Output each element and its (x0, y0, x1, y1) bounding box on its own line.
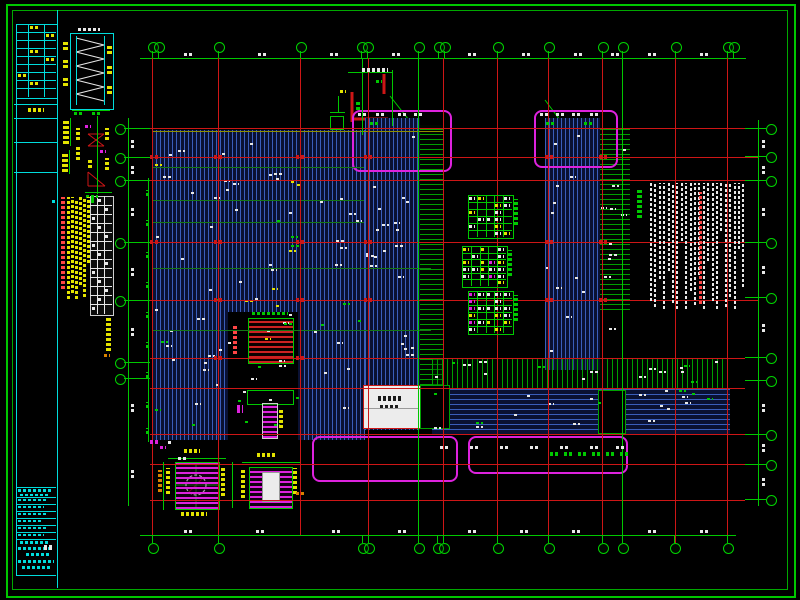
text-smear (546, 122, 556, 125)
text-smear (279, 408, 283, 428)
notes-text-column (703, 183, 705, 309)
text-smear (178, 457, 186, 460)
text-smear (160, 446, 166, 449)
text-smear (637, 188, 642, 218)
annotation-smear (269, 174, 273, 176)
schedule-cell-text (498, 255, 504, 258)
annotation-smear (245, 421, 249, 423)
schedule-cell-text (478, 293, 484, 296)
grid-line-h (150, 464, 745, 465)
text-smear (762, 324, 765, 332)
annotation-smear (682, 396, 688, 398)
grid-line-h (14, 142, 57, 143)
text-smear (522, 53, 532, 56)
text-smear (470, 446, 478, 449)
axis-stem (124, 128, 151, 129)
grid-line-h (150, 300, 758, 301)
annotation-smear (659, 371, 666, 373)
text-smear (572, 113, 580, 116)
annotation-smear (681, 371, 684, 373)
axis-stem (602, 51, 603, 59)
axis-bubble (766, 293, 777, 304)
grid-line-h (150, 388, 745, 389)
text-smear (71, 197, 74, 293)
grid-line-v (152, 58, 153, 543)
annotation-smear (219, 349, 223, 351)
notes-text-column (729, 183, 731, 297)
text-smear (168, 441, 173, 444)
axis-stem (152, 51, 153, 59)
axis-stem (124, 242, 151, 243)
plan-region (262, 472, 280, 502)
axis-bubble (154, 42, 165, 53)
annotation-smear (374, 256, 378, 258)
axis-stem (497, 535, 498, 543)
axis-bubble (414, 543, 425, 554)
text-smear (545, 298, 553, 302)
axis-bubble (148, 543, 159, 554)
axis-stem (745, 156, 766, 157)
axis-stem (368, 535, 369, 543)
axis-stem (745, 380, 766, 381)
grid-line-h (140, 535, 736, 536)
grid-line-h (90, 232, 112, 233)
annotation-smear (228, 342, 232, 344)
grid-line-h (16, 511, 56, 512)
annotation-smear (404, 348, 409, 350)
text-smear (221, 466, 225, 496)
notes-text-column (694, 183, 696, 305)
axis-stem (745, 464, 766, 465)
text-smear (74, 112, 84, 115)
annotation-smear (692, 393, 696, 395)
grid-line-h (150, 157, 758, 158)
axis-bubble (598, 543, 609, 554)
annotation-smear (258, 366, 262, 368)
text-smear (100, 150, 106, 153)
annotation-smear (452, 362, 458, 364)
annotation-smear (684, 365, 690, 367)
axis-stem (437, 535, 438, 543)
axis-bubble (439, 543, 450, 554)
notes-text-column (663, 183, 665, 309)
schedule-cell-text (469, 314, 475, 317)
text-smear (63, 120, 69, 144)
text-smear (105, 128, 109, 140)
schedule-grid-h (468, 326, 512, 327)
grid-line-h (16, 72, 56, 73)
grid-line-h (16, 575, 56, 576)
text-smear (61, 197, 65, 289)
annotation-smear (181, 258, 186, 260)
text-smear (378, 396, 402, 401)
notes-text-column (685, 183, 687, 309)
axis-bubble (440, 42, 451, 53)
text-smear (18, 520, 42, 522)
text-smear (414, 113, 422, 116)
text-smear (296, 298, 304, 302)
annotation-smear (680, 367, 684, 369)
grid-line-v (163, 462, 164, 510)
annotation-smear (272, 288, 278, 290)
annotation-smear (243, 391, 246, 393)
text-smear (584, 122, 594, 125)
annotation-smear (161, 341, 168, 343)
axis-stem (548, 535, 549, 543)
grid-line-v (300, 58, 301, 535)
annotation-smear (204, 362, 209, 364)
text-smear (340, 90, 346, 93)
annotation-smear (556, 287, 562, 289)
axis-stem (124, 180, 151, 181)
grid-line-h (90, 214, 112, 215)
grid-line-v (104, 36, 105, 105)
axis-bubble (729, 42, 740, 53)
annotation-smear (476, 426, 484, 428)
annotation-smear (679, 390, 686, 392)
text-smear (184, 53, 194, 56)
annotation-smear (210, 226, 213, 228)
plan-region (534, 110, 618, 168)
annotation-smear (274, 173, 282, 175)
schedule-grid-h (468, 305, 512, 306)
schedule-cell-text (487, 293, 493, 296)
grid-line-v (28, 24, 29, 97)
grid-line-h (16, 48, 56, 49)
grid-line-h (16, 32, 56, 33)
text-smear (599, 298, 607, 302)
annotation-smear (582, 291, 585, 293)
schedule-cell-text (463, 275, 469, 278)
annotation-smear (575, 277, 580, 279)
axis-stem (218, 535, 219, 543)
grid-line-h (90, 205, 112, 206)
annotation-smear (226, 189, 232, 191)
annotation-smear (155, 409, 161, 411)
text-smear (20, 541, 50, 544)
grid-line-h (90, 223, 112, 224)
schedule-cell-text (504, 321, 510, 324)
grid-line-h (90, 268, 112, 269)
annotation-smear (349, 213, 356, 215)
axis-bubble (493, 543, 504, 554)
grid-line-v (128, 118, 129, 506)
schedule-cell-text (495, 328, 501, 331)
text-smear (520, 530, 530, 533)
text-smear (78, 28, 100, 31)
annotation-smear (609, 328, 616, 330)
grid-line-v (232, 462, 233, 508)
annotation-smear (378, 208, 382, 210)
text-smear (256, 530, 266, 533)
grid-line-v (758, 120, 759, 506)
axis-stem (622, 535, 623, 543)
text-smear (233, 324, 237, 354)
text-smear (762, 404, 765, 412)
text-smear (18, 489, 52, 492)
notes-text-column (716, 183, 718, 309)
axis-stem (745, 180, 766, 181)
schedule-cell-text (504, 293, 510, 296)
annotation-smear (172, 359, 175, 361)
text-smear (648, 530, 658, 533)
notes-text-column (681, 183, 683, 241)
text-smear (258, 53, 268, 56)
schedule-cell-text (495, 218, 501, 221)
annotation-smear (383, 250, 386, 252)
text-smear (700, 530, 710, 533)
annotation-smear (660, 405, 665, 407)
text-smear (18, 506, 44, 508)
text-smear (18, 534, 44, 536)
text-smear (166, 468, 170, 494)
cad-sheet (0, 0, 800, 600)
schedule-cell-text (463, 268, 469, 271)
text-smear (146, 372, 149, 378)
text-smear (67, 197, 70, 299)
axis-bubble (766, 495, 777, 506)
text-smear (370, 122, 380, 125)
text-smear (181, 512, 207, 516)
text-smear (214, 240, 222, 244)
annotation-smear (251, 378, 258, 380)
text-smear (590, 113, 598, 116)
annotation-smear (434, 427, 441, 429)
annotation-smear (276, 305, 281, 307)
text-smear (131, 208, 134, 216)
text-smear (83, 199, 86, 297)
text-smear (146, 252, 149, 258)
annotation-smear (279, 360, 285, 362)
annotation-smear (550, 350, 555, 352)
axis-stem (158, 51, 159, 59)
schedule-grid-h (462, 253, 506, 254)
text-smear (648, 53, 658, 56)
annotation-smear (238, 400, 244, 402)
axis-stem (727, 51, 728, 59)
axis-bubble (115, 238, 126, 249)
annotation-smear (667, 408, 670, 410)
grid-line-h (16, 80, 56, 81)
annotation-smear (291, 245, 298, 247)
text-smear (76, 146, 80, 160)
axis-stem (745, 499, 766, 500)
text-smear (380, 405, 398, 408)
annotation-smear (337, 342, 343, 344)
annotation-smear (609, 254, 617, 256)
axis-bubble (544, 543, 555, 554)
grid-line-h (16, 539, 56, 540)
axis-stem (124, 157, 151, 158)
text-smear (75, 199, 78, 299)
text-smear (398, 530, 406, 533)
axis-bubble (296, 42, 307, 53)
text-smear (376, 80, 382, 83)
schedule-grid-h (468, 298, 512, 299)
annotation-smear (289, 250, 297, 252)
plan-region (432, 358, 730, 388)
schedule-cell-text (489, 261, 495, 264)
text-smear (556, 113, 564, 116)
annotation-smear (398, 276, 404, 278)
schedule-grid-h (468, 216, 512, 217)
text-smear (146, 342, 149, 348)
grid-line-h (153, 167, 364, 168)
schedule-cell-text (495, 300, 501, 303)
schedule-cell-text (469, 321, 475, 324)
annotation-smear (395, 245, 403, 247)
text-smear (237, 405, 243, 413)
grid-line-h (153, 222, 364, 223)
axis-stem (124, 378, 151, 379)
text-smear (762, 444, 765, 452)
text-smear (18, 513, 48, 515)
annotation-smear (192, 424, 196, 426)
annotation-smear (665, 390, 670, 392)
axis-stem (124, 362, 151, 363)
annotation-smear (612, 185, 619, 187)
text-smear (92, 244, 96, 247)
text-smear (540, 113, 548, 116)
schedule-label (514, 199, 518, 225)
text-smear (184, 530, 194, 533)
annotation-smear (195, 403, 200, 405)
schedule-label (508, 250, 512, 276)
axis-stem (727, 535, 728, 543)
grid-line-v (70, 118, 71, 146)
schedule-cell-text (478, 218, 484, 221)
schedule-cell-text (463, 248, 469, 251)
text-smear (146, 402, 149, 408)
schedule-cell-text (504, 307, 510, 310)
annotation-smear (340, 247, 347, 249)
axis-bubble (670, 543, 681, 554)
annotation-smear (412, 136, 416, 138)
annotation-smear (554, 143, 559, 145)
axis-bubble (766, 124, 777, 135)
annotation-smear (314, 331, 320, 333)
notes-text-column (712, 183, 714, 301)
annotation-smear (639, 394, 646, 396)
notes-text-column (668, 183, 670, 271)
axis-stem (443, 535, 444, 543)
text-smear (98, 280, 102, 283)
schedule-grid-h (468, 209, 512, 210)
annotation-smear (163, 176, 170, 178)
text-smear (468, 530, 478, 533)
schedule-cell-text (478, 197, 484, 200)
text-smear (762, 266, 765, 274)
grid-line-v (44, 24, 45, 97)
text-smear (332, 530, 342, 533)
text-smear (106, 317, 111, 351)
axis-bubble (115, 374, 126, 385)
text-smear (85, 125, 91, 128)
annotation-smear (235, 209, 238, 211)
plan-region (175, 462, 220, 510)
annotation-smear (169, 154, 175, 156)
text-smear (560, 446, 568, 449)
schedule-cell-text (504, 314, 510, 317)
text-smear (241, 470, 245, 498)
notes-text-column (672, 183, 674, 303)
axis-stem (300, 51, 301, 59)
text-smear (62, 152, 68, 172)
axis-bubble (214, 543, 225, 554)
axis-bubble (598, 42, 609, 53)
schedule-cell-text (469, 197, 475, 200)
axis-stem (438, 51, 439, 59)
schedule-cell-text (481, 261, 487, 264)
grid-line-h (90, 250, 112, 251)
text-smear (358, 113, 366, 116)
schedule-cell-text (504, 232, 510, 235)
text-smear (699, 192, 702, 304)
axis-bubble (544, 42, 555, 53)
grid-line-v (443, 58, 444, 543)
text-smear (131, 328, 134, 336)
annotation-smear (209, 289, 213, 291)
text-smear (87, 197, 90, 263)
annotation-smear (648, 420, 655, 422)
text-smear (150, 440, 158, 444)
axis-bubble (766, 376, 777, 387)
text-smear (599, 240, 607, 244)
text-smear (398, 113, 406, 116)
text-smear (18, 499, 48, 501)
grid-line-h (14, 104, 57, 105)
annotation-smear (320, 201, 324, 203)
grid-line-h (90, 259, 112, 260)
annotation-smear (556, 185, 560, 187)
text-smear (214, 155, 222, 159)
text-smear (296, 492, 304, 495)
text-smear (762, 166, 765, 174)
text-smear (105, 158, 109, 170)
axis-bubble (723, 543, 734, 554)
schedule-grid-h (468, 223, 512, 224)
annotation-smear (649, 368, 656, 370)
schedule-cell-text (495, 232, 501, 235)
axis-bubble (766, 238, 777, 249)
text-smear (44, 545, 54, 550)
annotation-smear (269, 264, 272, 266)
schedule-cell-text (469, 307, 475, 310)
schedule-cell-text (504, 204, 510, 207)
text-smear (18, 74, 26, 77)
axis-bubble (671, 42, 682, 53)
grid-line-v (418, 58, 419, 535)
text-smear (88, 160, 92, 168)
text-smear (150, 240, 158, 244)
axis-stem (444, 51, 445, 59)
axis-bubble (214, 42, 225, 53)
grid-line-h (150, 434, 745, 435)
text-smear (79, 197, 82, 285)
schedule-grid-h (462, 259, 506, 260)
axis-bubble (766, 152, 777, 163)
axis-stem (218, 51, 219, 59)
axis-bubble (115, 358, 126, 369)
text-smear (28, 108, 44, 112)
axis-stem (745, 128, 766, 129)
axis-stem (361, 51, 362, 59)
axis-stem (733, 51, 734, 59)
text-smear (578, 452, 588, 456)
text-smear (530, 446, 538, 449)
text-smear (131, 166, 134, 174)
text-smear (330, 53, 340, 56)
